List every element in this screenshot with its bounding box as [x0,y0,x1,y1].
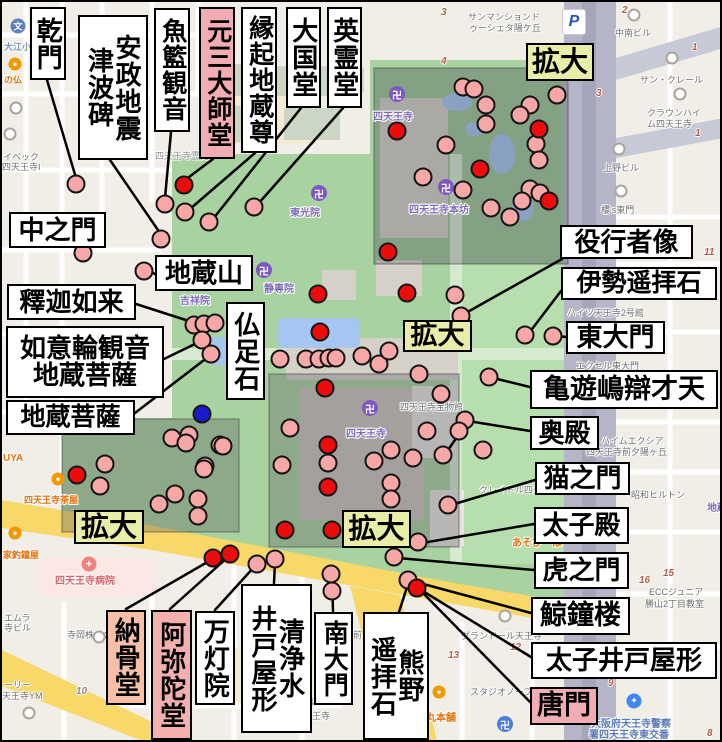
callout-label-higashi-daimon: 東大門 [566,321,665,354]
callout-text: 熊野 [397,649,424,703]
callout-label-ansei-jishin-tsunami-hi: 安政地震津波碑 [78,15,148,160]
callout-label-neko-no-mon: 猫之門 [535,462,630,495]
callout-text: 奥殿 [538,420,590,447]
callout-text: 伊勢遥拝石 [576,271,701,297]
callout-label-kara-mon: 唐門 [530,687,598,725]
callout-text: 役行者像 [574,229,678,256]
callout-text: 虎之門 [542,557,620,584]
callout-label-shojo-sui-ido-yakata: 清浄水井戸屋形 [241,584,312,733]
callout-text: 遥拝石 [369,636,396,717]
callout-text: 釋迦如来 [19,289,123,316]
callout-text: 中之門 [18,217,96,244]
callout-label-jizo-bosatsu: 地蔵菩薩 [6,400,135,435]
callout-label-oku-den: 奥殿 [530,416,599,450]
callout-text: 地蔵菩薩 [20,362,150,389]
callout-text: 魚籃観音 [159,18,185,122]
callout-label-eirei-do: 英霊堂 [327,7,362,108]
zoom-link-kakudai-1[interactable]: 拡大 [526,43,594,81]
callout-label-layer: 乾門安政地震津波碑魚籃観音元三大師堂縁起地蔵尊大国堂英霊堂中之門地蔵山釋迦如来如… [2,2,720,740]
callout-text: 猫之門 [543,465,621,492]
callout-text: 英霊堂 [331,17,358,98]
callout-text: 拡大 [81,513,137,542]
callout-text: 唐門 [537,692,591,720]
callout-text: 井戸屋形 [249,605,276,713]
callout-label-nyoirin-kannon-jizo-bosatsu: 如意輪観音地蔵菩薩 [6,326,164,398]
callout-text: 地蔵菩薩 [20,405,120,431]
callout-label-kiyushima-benzaiten: 亀遊嶋辯才天 [530,370,718,409]
callout-label-amida-do: 阿弥陀堂 [151,610,192,740]
callout-text: 拡大 [532,48,588,77]
callout-label-daikoku-do: 大国堂 [286,7,321,108]
callout-text: 拡大 [411,322,465,350]
zoom-link-kakudai-3[interactable]: 拡大 [74,510,144,544]
callout-text: 納骨堂 [113,617,140,698]
callout-label-jizo-yama: 地蔵山 [155,255,253,291]
callout-label-manto-in: 万灯院 [195,611,235,705]
callout-text: 安政地震 [114,34,141,142]
callout-label-naka-no-mon: 中之門 [9,212,106,248]
callout-label-shaka-nyorai: 釋迦如来 [7,284,136,320]
callout-text: 亀遊嶋辯才天 [543,376,705,404]
callout-label-ise-yohai-seki: 伊勢遥拝石 [561,267,717,300]
zoom-link-kakudai-4[interactable]: 拡大 [342,510,411,548]
callout-label-en-no-gyoja-zo: 役行者像 [560,225,693,259]
callout-label-ganzan-daishi-do: 元三大師堂 [199,7,235,159]
callout-label-nandai-mon: 南大門 [314,612,353,705]
callout-text: 縁起地蔵尊 [246,15,272,145]
callout-text: 元三大師堂 [204,18,230,148]
callout-text: 阿弥陀堂 [158,621,185,729]
callout-text: 南大門 [321,620,347,698]
map-canvas[interactable]: サンマンションドゥーシェタ陽ケ丘中南ビルサン・クレールクラウンハイム四天王寺上野… [0,0,722,742]
callout-text: 乾門 [35,17,62,71]
callout-text: 如意輪観音 [20,335,150,362]
callout-label-nokotsu-do: 納骨堂 [106,610,146,705]
callout-label-butsusoku-seki: 仏足石 [226,302,265,400]
callout-label-geisho-ro: 鯨鐘楼 [531,597,630,635]
callout-text: 大国堂 [290,17,317,98]
callout-text: 東大門 [576,324,654,351]
zoom-link-kakudai-2[interactable]: 拡大 [403,320,472,352]
callout-label-inui-mon: 乾門 [30,7,66,80]
callout-text: 万灯院 [202,618,229,699]
callout-text: 拡大 [348,515,404,544]
callout-text: 津波碑 [86,47,113,128]
callout-text: 清浄水 [277,618,304,699]
callout-text: 太子殿 [542,512,620,539]
callout-text: 鯨鐘楼 [540,602,621,630]
callout-text: 太子井戸屋形 [546,647,702,674]
callout-label-tora-no-mon: 虎之門 [534,552,629,589]
callout-label-taishi-ido-yakata: 太子井戸屋形 [531,642,717,679]
callout-text: 仏足石 [232,311,259,392]
callout-text: 地蔵山 [165,260,243,287]
callout-label-gyoran-kannon: 魚籃観音 [154,8,190,132]
callout-label-kumano-yohai-seki: 熊野遥拝石 [363,612,429,740]
callout-label-taishi-den: 太子殿 [534,507,629,544]
callout-label-engi-jizo-son: 縁起地蔵尊 [241,7,277,153]
